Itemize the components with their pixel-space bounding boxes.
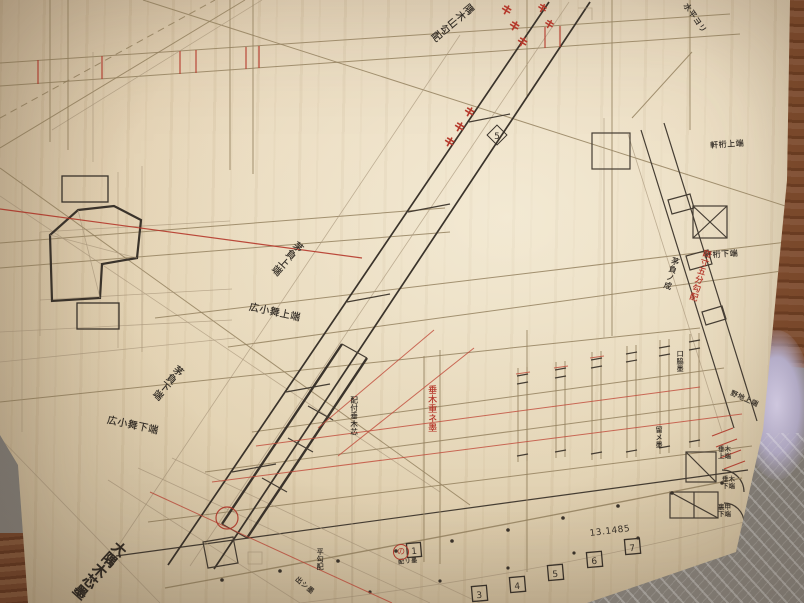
- station-4: 4: [514, 582, 521, 592]
- station-5: 5: [552, 570, 559, 580]
- station-6: 6: [591, 557, 598, 567]
- label-hira: 平勾配: [316, 548, 323, 571]
- label-kuchiwaki: 口脇墨: [676, 350, 683, 373]
- station-markers: 1 3 4 5 6 7 5 13.1485: [406, 125, 640, 601]
- pencil-construction-lines: [0, 0, 804, 603]
- full-scale-drawing: 1 3 4 5 6 7 5 13.1485: [0, 0, 804, 603]
- rafter-strips: [517, 333, 700, 462]
- red-circle-mark: の: [393, 544, 409, 560]
- red-ink-lines: [0, 26, 745, 603]
- measurement-value: 13.1485: [589, 524, 631, 539]
- workshop-photo: 1 3 4 5 6 7 5 13.1485 隅木山勾配 水平ヨリ 野地上端 軒桁…: [0, 0, 804, 603]
- station-1: 1: [411, 547, 418, 557]
- label-urako: 裏甲下端: [718, 504, 732, 517]
- diamond-station-5: 5: [494, 132, 500, 142]
- station-7: 7: [629, 544, 636, 554]
- left-joint-details: [50, 176, 141, 329]
- label-haitsuke: 配付垂木芯: [350, 396, 358, 436]
- layout-drawing-board: 1 3 4 5 6 7 5 13.1485 隅木山勾配 水平ヨリ 野地上端 軒桁…: [0, 0, 804, 603]
- label-edge-top: 垂木上端: [718, 446, 732, 459]
- label-rafter-overlap: 垂木重ネ墨: [426, 385, 435, 433]
- vertical-reference-lines: [22, 0, 692, 603]
- label-edge-bottom: 垂木下端: [722, 476, 736, 489]
- label-tome: 留メ墨: [655, 426, 662, 449]
- station-3: 3: [476, 591, 483, 601]
